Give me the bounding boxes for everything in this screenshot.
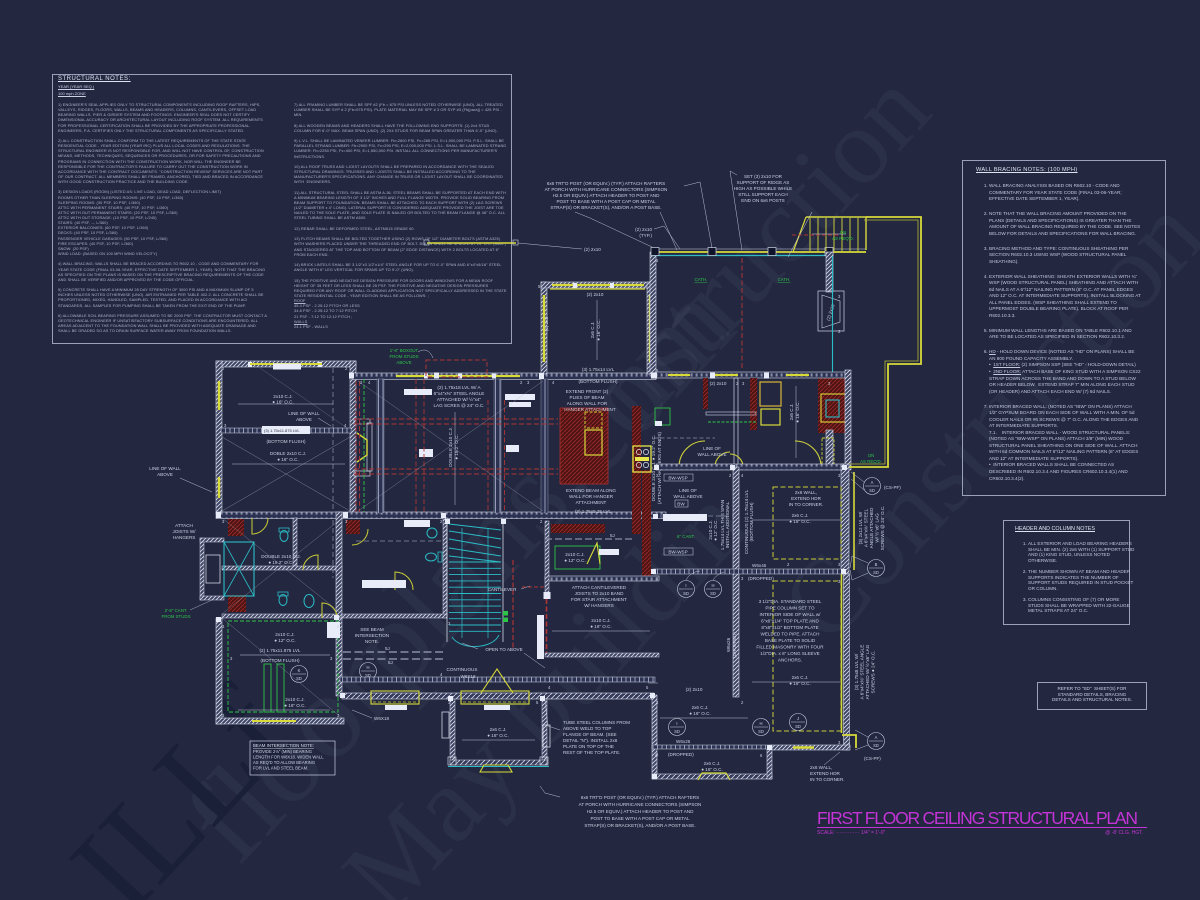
- svg-text:(3) 1.75x9.25 LVL: (3) 1.75x9.25 LVL: [575, 509, 612, 514]
- svg-text:2x6 WALL,: 2x6 WALL,: [795, 490, 817, 495]
- svg-text:(3) 1.75x14 LVL: (3) 1.75x14 LVL: [582, 367, 615, 372]
- svg-text:POST TO BASE WITH A POST CAP O: POST TO BASE WITH A POST CAP OR METAL: [556, 199, 655, 204]
- svg-text:3: 3: [838, 562, 841, 567]
- svg-text:6: 6: [656, 752, 659, 757]
- svg-text:W/ ½"x6" LAG: W/ ½"x6" LAG: [874, 513, 880, 543]
- svg-text:DOUBLE 2x10 C.J.: DOUBLE 2x10 C.J.: [261, 554, 301, 559]
- svg-text:WALL FOR HANGER: WALL FOR HANGER: [569, 494, 614, 499]
- svg-text:3: 3: [838, 329, 841, 334]
- svg-text:1.75x14 LVL THIS SPAN: 1.75x14 LVL THIS SPAN: [720, 500, 725, 550]
- svg-text:4: 4: [548, 685, 551, 690]
- svg-text:2x6 C.J.: 2x6 C.J.: [692, 705, 709, 710]
- svg-text:H: H: [366, 665, 369, 670]
- svg-text:6x6 TRT'D POST (OR EQUIV.) (TY: 6x6 TRT'D POST (OR EQUIV.) (TYP.) ATTACH…: [581, 795, 699, 800]
- svg-text:5: 5: [538, 284, 541, 289]
- svg-text:2x6 C.J.: 2x6 C.J.: [590, 322, 595, 339]
- svg-text:6"x6"x1/4" TOP PLATE AND: 6"x6"x1/4" TOP PLATE AND: [761, 619, 819, 624]
- svg-text:(2) 2x10: (2) 2x10: [710, 381, 727, 386]
- svg-text:3: 3: [224, 423, 227, 428]
- svg-text:WELDED TO PIPE. ATTACH: WELDED TO PIPE. ATTACH: [761, 632, 820, 637]
- svg-text:IN TO CORNER.: IN TO CORNER.: [789, 502, 824, 507]
- svg-text:SD: SD: [674, 729, 680, 734]
- svg-text:2x6 C.J.: 2x6 C.J.: [789, 404, 794, 421]
- svg-text:INSTALL ADDITIONAL: INSTALL ADDITIONAL: [725, 501, 730, 548]
- svg-text:● 19.2" O.C.: ● 19.2" O.C.: [268, 560, 293, 565]
- svg-text:3: 3: [222, 713, 225, 718]
- svg-text:ATTACH CANTILEVERED: ATTACH CANTILEVERED: [572, 585, 627, 590]
- svg-text:6x6 TRT'D POST (OR EQUIV.) (TY: 6x6 TRT'D POST (OR EQUIV.) (TYP.) ATTACH…: [547, 181, 665, 186]
- svg-text:SCREWS @ 24" O.C.: SCREWS @ 24" O.C.: [880, 506, 885, 551]
- svg-text:AT PORCH WITH HURRICANE CONNEC: AT PORCH WITH HURRICANE CONNECTORS (SIMP…: [545, 187, 668, 192]
- svg-text:5: 5: [646, 685, 649, 690]
- svg-text:ON: ON: [840, 230, 847, 235]
- svg-text:● 12" O.C.: ● 12" O.C.: [564, 558, 586, 563]
- svg-text:2x6 C.J.: 2x6 C.J.: [792, 675, 809, 680]
- svg-text:ATTACHED W/ ½"x4": ATTACHED W/ ½"x4": [437, 396, 482, 402]
- svg-text:EXTEND HDR: EXTEND HDR: [791, 496, 822, 501]
- svg-text:CATH.: CATH.: [695, 277, 708, 282]
- svg-text:3: 3: [838, 473, 841, 478]
- svg-text:W6X18: W6X18: [460, 674, 476, 679]
- svg-text:END ON 6x6 POSTS: END ON 6x6 POSTS: [741, 198, 784, 203]
- svg-text:OPEN TO ABOVE: OPEN TO ABOVE: [485, 647, 522, 652]
- svg-text:2: 2: [540, 519, 543, 524]
- svg-text:W/ HANGERS: W/ HANGERS: [584, 603, 614, 608]
- svg-text:● 16" O.C.: ● 16" O.C.: [596, 319, 601, 341]
- svg-text:4: 4: [552, 380, 555, 385]
- svg-text:● 16" O.C.: ● 16" O.C.: [487, 733, 509, 738]
- svg-text:● 16" O.C.: ● 16" O.C.: [789, 519, 811, 524]
- svg-text:(TYP.): (TYP.): [639, 233, 652, 238]
- svg-text:2x10 C.J.: 2x10 C.J.: [275, 632, 294, 637]
- svg-text:H: H: [711, 583, 714, 588]
- svg-text:5J: 5J: [610, 533, 615, 538]
- svg-text:● 16" O.C.: ● 16" O.C.: [789, 681, 811, 686]
- svg-text:(BOTTOM FLUSH): (BOTTOM FLUSH): [749, 502, 754, 541]
- svg-text:3: 3: [656, 700, 659, 705]
- svg-text:3: 3: [222, 624, 225, 629]
- svg-text:W6x26: W6x26: [676, 739, 691, 744]
- svg-text:3: 3: [741, 576, 744, 581]
- svg-text:(BOTTOM FLUSH): (BOTTOM FLUSH): [261, 658, 300, 663]
- svg-text:6"x4"x⅜" STEEL ANGLE: 6"x4"x⅜" STEEL ANGLE: [434, 391, 485, 396]
- svg-text:● 12" O.C.: ● 12" O.C.: [713, 519, 718, 541]
- svg-text:DOBLE 2x10 C.J.: DOBLE 2x10 C.J.: [270, 451, 306, 456]
- svg-text:STRAP(S) OR BRACKET(S), AND/OR: STRAP(S) OR BRACKET(S), AND/OR A POST BA…: [584, 823, 695, 828]
- svg-text:3: 3: [337, 713, 340, 718]
- svg-text:(DROPPED): (DROPPED): [748, 576, 774, 581]
- svg-text:PLIES OF BEAM: PLIES OF BEAM: [570, 395, 605, 400]
- svg-text:SD: SD: [873, 570, 879, 575]
- svg-text:2x6 C.J.: 2x6 C.J.: [792, 513, 809, 518]
- svg-text:PIPE COLUMN SET TO: PIPE COLUMN SET TO: [765, 606, 815, 611]
- svg-text:FILLED MASONRY WITH FOUR: FILLED MASONRY WITH FOUR: [756, 645, 824, 650]
- svg-text:B: B: [875, 562, 878, 567]
- svg-text:(DROPPED): (DROPPED): [668, 752, 694, 757]
- svg-text:5: 5: [656, 258, 659, 263]
- svg-text:FOR STAIR ATTACHMENT: FOR STAIR ATTACHMENT: [571, 597, 627, 602]
- svg-text:● 16" O.C.: ● 16" O.C.: [272, 400, 294, 405]
- svg-text:SD: SD: [869, 488, 875, 493]
- svg-text:● 19.2" O.C.: ● 19.2" O.C.: [454, 434, 459, 459]
- svg-text:1'-6" BOXOUT: 1'-6" BOXOUT: [390, 348, 419, 353]
- svg-text:2x6 C.J.: 2x6 C.J.: [704, 761, 721, 766]
- svg-text:SD: SD: [795, 724, 801, 729]
- svg-text:ANGLE ATTACHED: ANGLE ATTACHED: [869, 507, 874, 548]
- svg-text:EXTEND FRONT (2): EXTEND FRONT (2): [566, 389, 609, 394]
- svg-text:HANGERS: HANGERS: [173, 535, 196, 540]
- svg-text:5: 5: [536, 700, 539, 705]
- svg-text:6" CANT.: 6" CANT.: [677, 534, 695, 539]
- svg-text:SET (3) 2x10 FOR: SET (3) 2x10 FOR: [744, 174, 783, 179]
- svg-text:BW: BW: [677, 502, 685, 507]
- svg-text:2: 2: [741, 700, 744, 705]
- svg-text:AS REQ'D.: AS REQ'D.: [832, 236, 854, 241]
- svg-text:HIGH AS POSSIBLE WHILE: HIGH AS POSSIBLE WHILE: [734, 186, 792, 191]
- svg-text:(2) 2x10: (2) 2x10: [587, 292, 604, 297]
- svg-text:2: 2: [440, 519, 443, 524]
- svg-text:DETAIL "N"). INSTALL 2x6: DETAIL "N"). INSTALL 2x6: [563, 738, 618, 743]
- svg-text:● 16" O.C.: ● 16" O.C.: [590, 624, 612, 629]
- svg-text:● 16" O.C.: ● 16" O.C.: [689, 711, 711, 716]
- svg-text:SEE BEAM: SEE BEAM: [360, 627, 384, 632]
- svg-text:BW-WSP: BW-WSP: [668, 550, 687, 555]
- svg-text:(3) 1.75x11.875 LVL: (3) 1.75x11.875 LVL: [264, 428, 300, 433]
- svg-text:(BOTTOM FLUSH): (BOTTOM FLUSH): [579, 379, 618, 384]
- svg-text:FROM STUDS: FROM STUDS: [161, 614, 190, 619]
- svg-text:FOR LVL AND STEEL BEAM.: FOR LVL AND STEEL BEAM.: [253, 766, 308, 771]
- svg-text:SD: SD: [683, 591, 689, 596]
- svg-text:2x10 C.J.: 2x10 C.J.: [591, 618, 610, 623]
- svg-text:INTERSECTION: INTERSECTION: [355, 633, 389, 638]
- svg-text:ON: ON: [868, 453, 875, 458]
- svg-text:● 16" O.C.: ● 16" O.C.: [701, 767, 723, 772]
- svg-text:SCREWS ● 24" O.C.: SCREWS ● 24" O.C.: [871, 651, 876, 694]
- svg-text:3: 3: [838, 740, 841, 745]
- svg-text:5J: 5J: [385, 646, 390, 651]
- svg-text:4: 4: [741, 473, 744, 478]
- svg-text:J: J: [797, 716, 799, 721]
- svg-text:ATTACHED W/ ½"x6" LAG: ATTACHED W/ ½"x6" LAG: [864, 644, 870, 699]
- svg-text:STILL SUPPORT EACH: STILL SUPPORT EACH: [738, 192, 787, 197]
- svg-text:H: H: [759, 721, 762, 726]
- svg-text:● 16" O.C.: ● 16" O.C.: [277, 457, 299, 462]
- svg-text:2: 2: [520, 380, 523, 385]
- svg-text:6: 6: [760, 753, 763, 758]
- svg-text:(2) 2x8: (2) 2x8: [544, 316, 549, 331]
- svg-text:3: 3: [330, 656, 333, 661]
- svg-text:I: I: [685, 583, 686, 588]
- svg-text:FIRST FLOOR CEILING STRUCTURAL: FIRST FLOOR CEILING STRUCTURAL PLAN: [817, 808, 1141, 828]
- svg-text:NOTE.: NOTE.: [365, 639, 379, 644]
- svg-text:(2) 2x10: (2) 2x10: [826, 303, 836, 321]
- svg-text:STRAP(S) OR BRACKET(S), AND/OR: STRAP(S) OR BRACKET(S), AND/OR A POST BA…: [550, 205, 661, 210]
- svg-text:(BOTTOM FLUSH): (BOTTOM FLUSH): [267, 439, 306, 444]
- svg-text:(CS-PF): (CS-PF): [864, 756, 881, 761]
- svg-text:H2.5 OR EQUIV.) ATTACH HEADER: H2.5 OR EQUIV.) ATTACH HEADER TO POST AN…: [587, 809, 695, 814]
- svg-text:2x10 C.J.: 2x10 C.J.: [285, 697, 304, 702]
- svg-text:FROM STUDS: FROM STUDS: [389, 354, 418, 359]
- svg-text:SUPPORT OF RIDGE AS: SUPPORT OF RIDGE AS: [737, 180, 790, 185]
- svg-text:● 16" O.C.: ● 16" O.C.: [795, 401, 800, 423]
- svg-text:AT PORCH WITH HURRICANE CONNEC: AT PORCH WITH HURRICANE CONNECTORS (SIMP…: [579, 802, 702, 807]
- svg-text:@ -8' CLG. HGT.: @ -8' CLG. HGT.: [1105, 830, 1143, 836]
- svg-text:ATTACH: ATTACH: [175, 523, 193, 528]
- svg-text:IN TO CORNER.: IN TO CORNER.: [810, 777, 845, 782]
- svg-text:4: 4: [344, 423, 347, 428]
- svg-text:AS REQ'D.: AS REQ'D.: [860, 459, 882, 464]
- svg-text:(2) 1.75x11.875 LVL: (2) 1.75x11.875 LVL: [260, 648, 301, 653]
- svg-text:WALL ABOVE: WALL ABOVE: [673, 494, 702, 499]
- svg-text:ABOVE: ABOVE: [157, 472, 173, 477]
- svg-text:(2) 1.75x18 LVL W/ A: (2) 1.75x18 LVL W/ A: [437, 385, 481, 390]
- svg-text:JOISTS TO 2x10 BAND: JOISTS TO 2x10 BAND: [575, 591, 625, 596]
- svg-text:3: 3: [230, 656, 233, 661]
- svg-text:ALONG WALL FOR: ALONG WALL FOR: [567, 401, 608, 406]
- svg-text:2: 2: [736, 381, 739, 386]
- svg-text:JOISTS W/: JOISTS W/: [173, 529, 197, 534]
- svg-text:A 6"x4"x⅜" STEEL ANGLE: A 6"x4"x⅜" STEEL ANGLE: [860, 645, 865, 700]
- svg-text:TUBE STEEL COLUMNS FROM: TUBE STEEL COLUMNS FROM: [563, 720, 630, 725]
- svg-text:LAG SCRES @ 24" O.C.: LAG SCRES @ 24" O.C.: [434, 403, 485, 408]
- svg-text:ABOVE: ABOVE: [396, 360, 411, 365]
- svg-text:W6X18: W6X18: [374, 716, 390, 721]
- svg-text:LINE OF WALL: LINE OF WALL: [149, 466, 181, 471]
- svg-text:3: 3: [838, 294, 841, 299]
- svg-text:2x10 C.J.: 2x10 C.J.: [273, 394, 292, 399]
- svg-text:2'-8" CANT.: 2'-8" CANT.: [165, 608, 188, 613]
- svg-text:EXTEND HDR: EXTEND HDR: [810, 771, 841, 776]
- svg-text:3: 3: [742, 381, 745, 386]
- svg-text:PROVIDE 2⅛" (MIN) BEARING: PROVIDE 2⅛" (MIN) BEARING: [253, 749, 312, 754]
- svg-text:A: A: [871, 480, 874, 485]
- svg-text:CONTINUOUS: CONTINUOUS: [447, 667, 478, 672]
- svg-text:EXTEND BEAM ALONG: EXTEND BEAM ALONG: [566, 488, 616, 493]
- svg-text:(3) 1.75x8 LVL W/: (3) 1.75x8 LVL W/: [854, 653, 859, 690]
- svg-text:● 16" O.C.: ● 16" O.C.: [284, 703, 306, 708]
- svg-text:(3) 2x12 LVL W/: (3) 2x12 LVL W/: [858, 511, 863, 544]
- svg-text:3: 3: [527, 380, 530, 385]
- svg-text:ATTACHMENT: ATTACHMENT: [576, 500, 607, 505]
- svg-text:2x10 C.J.: 2x10 C.J.: [565, 552, 584, 557]
- svg-text:CATH.: CATH.: [778, 277, 791, 282]
- svg-text:BEAM INTERSECTION NOTE:: BEAM INTERSECTION NOTE:: [253, 743, 314, 748]
- svg-text:AS REQ'D TO ALLOW BEARING: AS REQ'D TO ALLOW BEARING: [253, 760, 315, 765]
- svg-text:2x6 C.J.: 2x6 C.J.: [490, 727, 507, 732]
- svg-text:BASE PLATE TO SOLID: BASE PLATE TO SOLID: [765, 638, 816, 643]
- svg-text:● 12" O.C.: ● 12" O.C.: [274, 638, 296, 643]
- svg-text:REST OF THE TOP PLATE.: REST OF THE TOP PLATE.: [563, 750, 620, 755]
- svg-text:4: 4: [440, 672, 443, 677]
- svg-text:8"x8"x1/2" BOTTOM PLATE: 8"x8"x1/2" BOTTOM PLATE: [761, 625, 818, 630]
- svg-text:1/2"DIA. x 6" LONG SLEEVE: 1/2"DIA. x 6" LONG SLEEVE: [760, 651, 819, 656]
- svg-text:SD: SD: [758, 729, 764, 734]
- svg-text:POST TO BASE WITH A POST CAP O: POST TO BASE WITH A POST CAP OR METAL: [590, 816, 689, 821]
- svg-text:SD: SD: [873, 743, 879, 748]
- svg-text:BW-WSP: BW-WSP: [668, 476, 687, 481]
- svg-text:SCALE: ·············· 1/4" = 1: SCALE: ·············· 1/4" = 1'-0": [817, 830, 885, 836]
- svg-text:(2) 2x10: (2) 2x10: [635, 227, 652, 232]
- svg-text:LINE OF WALL: LINE OF WALL: [288, 411, 320, 416]
- svg-text:(2) 2x10: (2) 2x10: [584, 247, 601, 252]
- svg-text:PLATE ON TOP OF THE: PLATE ON TOP OF THE: [563, 744, 614, 749]
- svg-text:A: A: [875, 735, 878, 740]
- svg-text:H2.5 OR EQUIV.) ATTACH HEADER: H2.5 OR EQUIV.) ATTACH HEADER TO POST AN…: [553, 193, 661, 198]
- svg-text:(2) 2x10: (2) 2x10: [686, 687, 703, 692]
- svg-text:SD: SD: [710, 591, 716, 596]
- svg-text:(DROPPED): (DROPPED): [732, 632, 737, 658]
- svg-text:HANGER ATTACHMENT: HANGER ATTACHMENT: [564, 407, 616, 412]
- svg-text:5J: 5J: [388, 660, 393, 665]
- svg-text:K: K: [298, 668, 301, 673]
- svg-text:I: I: [676, 721, 677, 726]
- svg-text:ANCHORS.: ANCHORS.: [778, 658, 802, 663]
- svg-text:2x6 WALL,: 2x6 WALL,: [810, 765, 832, 770]
- svg-text:(CS-PF): (CS-PF): [884, 485, 901, 490]
- svg-text:LINE OF: LINE OF: [703, 446, 721, 451]
- svg-text:W6x45: W6x45: [752, 563, 767, 568]
- svg-text:ABOVE WELD TO TOP: ABOVE WELD TO TOP: [563, 726, 611, 731]
- svg-text:2: 2: [787, 562, 790, 567]
- svg-text:A 6"x4"x⅜" STEEL: A 6"x4"x⅜" STEEL: [864, 508, 869, 547]
- svg-text:ABOVE: ABOVE: [296, 417, 312, 422]
- svg-text:4: 4: [368, 380, 371, 385]
- svg-text:WALL ABOVE: WALL ABOVE: [697, 452, 726, 457]
- svg-text:LENGTH FOR W8X18. WIDEN WALL: LENGTH FOR W8X18. WIDEN WALL: [253, 755, 324, 760]
- svg-text:3 1/2"DIA. STANDARD STEEL: 3 1/2"DIA. STANDARD STEEL: [759, 599, 822, 604]
- svg-text:LINE OF: LINE OF: [679, 488, 697, 493]
- svg-text:3: 3: [222, 519, 225, 524]
- svg-text:INTERIOR SIDE OF WALL w/: INTERIOR SIDE OF WALL w/: [760, 612, 822, 617]
- svg-text:FLANGE OF BEAM. (SEE: FLANGE OF BEAM. (SEE: [563, 732, 617, 737]
- svg-text:W6x26: W6x26: [726, 637, 731, 652]
- svg-text:2: 2: [729, 473, 732, 478]
